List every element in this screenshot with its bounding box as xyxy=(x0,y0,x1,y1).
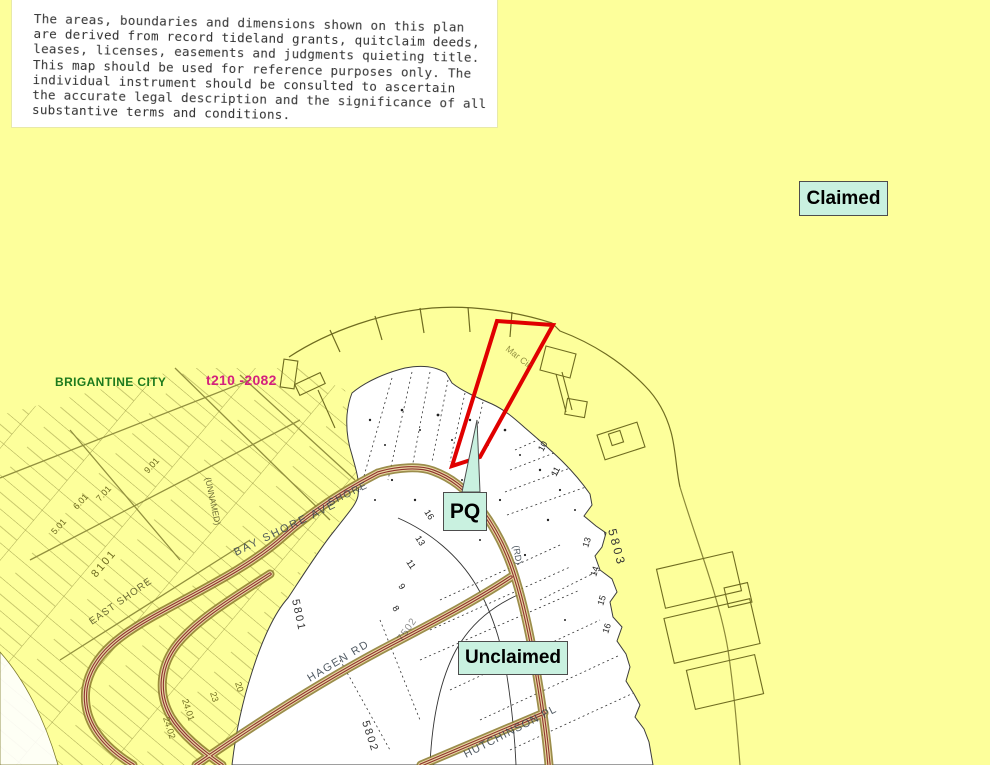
claimed-status-label: Claimed xyxy=(799,181,888,216)
claim-reference-number: t210 -2082 xyxy=(206,372,277,388)
disclaimer-note: The areas, boundaries and dimensions sho… xyxy=(12,0,497,127)
pq-claim-label: PQ xyxy=(443,492,487,531)
tidelands-claim-map: BAY SHORE AVE SHORE EAST SHORE HAGEN RD … xyxy=(0,0,990,765)
municipality-name: BRIGANTINE CITY xyxy=(55,375,166,389)
disclaimer-text: The areas, boundaries and dimensions sho… xyxy=(32,11,484,126)
unclaimed-status-label: Unclaimed xyxy=(458,641,568,675)
